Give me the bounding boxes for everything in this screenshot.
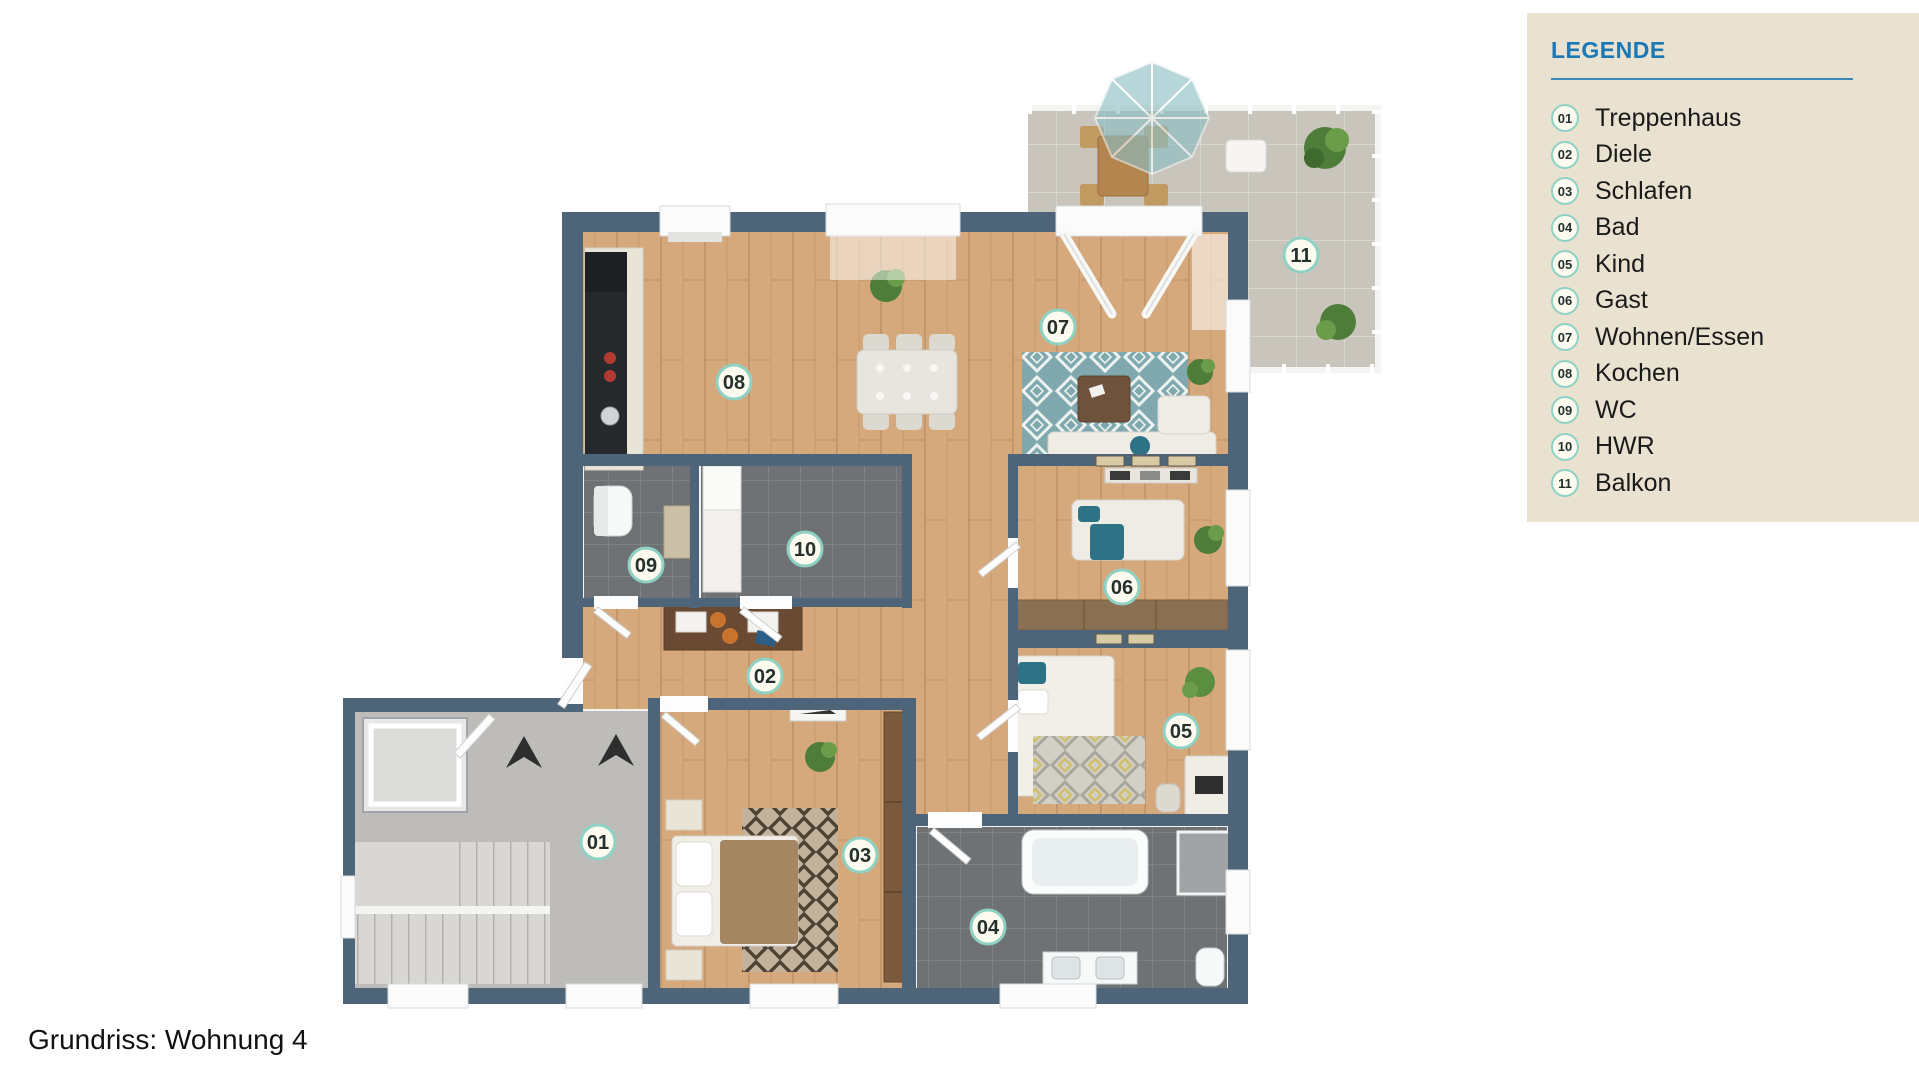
legend-label: Bad [1595,213,1639,242]
window [388,984,468,1008]
legend-label: Kind [1595,250,1645,279]
legend-label: Gast [1595,286,1648,315]
legend-number-badge: 05 [1551,250,1579,278]
legend-panel: LEGENDE 01 Treppenhaus 02 Diele 03 Schla… [1527,13,1919,522]
badge-number: 06 [1111,577,1133,599]
legend-number-badge: 03 [1551,177,1579,205]
window [1226,490,1250,586]
legend-item-kochen: 08 Kochen [1551,356,1919,393]
door-opening-bathroom [928,812,982,828]
legend-item-hwr: 10 HWR [1551,429,1919,466]
window [1226,870,1250,934]
room-badge-schlafen: 03 [843,838,877,872]
legend-item-schlafen: 03 Schlafen [1551,173,1919,210]
plan-caption: Grundriss: Wohnung 4 [28,1024,308,1056]
wall-interior [902,698,916,990]
dining-chair [929,412,955,430]
toilet [1196,948,1224,986]
wall-interior [902,454,912,608]
room-badge-treppenhaus: 01 [581,825,615,859]
wall-interior [690,454,699,608]
badge-number: 07 [1047,317,1069,339]
badge-number: 02 [754,666,776,688]
legend-item-bad: 04 Bad [1551,210,1919,247]
badge-number: 03 [849,845,871,867]
legend-label: Schlafen [1595,177,1692,206]
pillow [676,842,712,886]
room-badge-diele: 02 [748,659,782,693]
tv-console [1105,468,1197,483]
dining-chair [863,334,889,352]
transom-window [1132,456,1160,466]
dining-chair [896,412,922,430]
legend-label: Diele [1595,140,1652,169]
door-opening-wc [594,596,638,609]
room-badge-gast: 06 [1105,570,1139,604]
sink [1096,957,1124,979]
legend-item-wc: 09 WC [1551,392,1919,429]
wall-wing-top [343,698,583,712]
legend-label: HWR [1595,432,1655,461]
kitchen-sink [601,407,619,425]
laptop [1195,776,1223,794]
stair-landing [351,842,445,906]
transom-window [1096,634,1122,644]
window [1226,650,1250,750]
window [1226,300,1250,392]
window [750,984,838,1008]
kids-rug [1033,736,1145,804]
legend-item-kind: 05 Kind [1551,246,1919,283]
stair-divider [351,906,550,914]
balcony-side-table [1226,140,1266,172]
room-badge-hwr: 10 [788,532,822,566]
duvet [720,840,798,944]
washer [703,466,741,510]
legend-label: Kochen [1595,359,1680,388]
wc-cabinet [664,506,690,558]
window [566,984,642,1008]
room-badge-kochen: 08 [717,365,751,399]
shower [1178,832,1230,894]
pouf [722,628,738,644]
pouf [710,612,726,628]
legend-label: Balkon [1595,469,1671,498]
pillow [1018,662,1046,684]
umbrella [1095,62,1209,174]
wall-interior [648,698,660,990]
curtain [830,236,956,280]
blanket [1090,524,1124,560]
legend-number-badge: 02 [1551,141,1579,169]
nightstand [666,800,702,830]
badge-number: 04 [977,917,1000,939]
door-opening-hwr [740,596,792,609]
coffee-table [1078,376,1130,422]
transom-window [1168,456,1196,466]
wall-exterior-left [562,212,583,710]
sofa-chaise [1158,396,1210,434]
legend-label: WC [1595,396,1637,425]
window [660,206,730,242]
legend-number-badge: 04 [1551,214,1579,242]
legend-number-badge: 08 [1551,360,1579,388]
fridge [585,252,627,292]
legend-number-badge: 11 [1551,469,1579,497]
legend-title: LEGENDE [1551,37,1919,64]
stair-flight-upper [445,842,550,906]
room-badge-wc: 09 [629,548,663,582]
legend-item-gast: 06 Gast [1551,283,1919,320]
sofa-pillow [1130,436,1150,456]
window [341,876,355,938]
stove-burner [604,370,616,382]
radiator [668,232,722,242]
legend-item-treppenhaus: 01 Treppenhaus [1551,100,1919,137]
room-badge-bad: 04 [971,910,1005,944]
legend-number-badge: 10 [1551,433,1579,461]
legend-item-balkon: 11 Balkon [1551,465,1919,502]
kitchen [585,248,643,470]
stair-flight-lower [351,914,550,984]
transom-window [1128,634,1154,644]
elevator-cab [371,726,459,804]
pillow [1078,506,1100,522]
legend-number-badge: 09 [1551,396,1579,424]
bathtub-basin [1032,838,1138,886]
legend-label: Treppenhaus [1595,104,1741,133]
wall-interior [583,454,912,466]
badge-number: 01 [587,832,609,854]
hwr [703,466,741,592]
hallway-console [664,604,802,650]
room-badge-kind: 05 [1164,714,1198,748]
badge-number: 11 [1290,245,1311,267]
transom-window [1096,456,1124,466]
badge-number: 10 [794,539,816,561]
wall-wing-left [343,698,355,998]
badge-number: 08 [723,372,745,394]
nightstand [666,950,702,980]
door-opening-bedroom [660,696,708,712]
legend-item-diele: 02 Diele [1551,137,1919,174]
toilet-tank [594,486,608,536]
legend-number-badge: 06 [1551,287,1579,315]
window [826,204,960,280]
dining-chair [896,334,922,352]
dining-chair [929,334,955,352]
stove-burner [604,352,616,364]
desk-chair [1156,784,1180,812]
pillow [676,892,712,936]
room-badge-wohnen-essen: 07 [1041,310,1075,344]
legend-number-badge: 01 [1551,104,1579,132]
floor-plan-page: 01 02 03 04 05 06 07 08 [0,0,1919,1080]
legend-list: 01 Treppenhaus 02 Diele 03 Schlafen 04 B… [1551,100,1919,502]
badge-number: 05 [1170,721,1192,743]
legend-divider [1551,78,1853,80]
pillow [1018,690,1048,714]
dining-chair [863,412,889,430]
dining-set [857,334,957,430]
room-badge-balkon: 11 [1284,238,1318,272]
legend-number-badge: 07 [1551,323,1579,351]
legend-label: Wohnen/Essen [1595,323,1764,352]
dining-table [857,350,957,414]
window [1000,984,1096,1008]
curtain [1192,234,1228,330]
sink [1052,957,1080,979]
badge-number: 09 [635,555,657,577]
legend-item-wohnen-essen: 07 Wohnen/Essen [1551,319,1919,356]
